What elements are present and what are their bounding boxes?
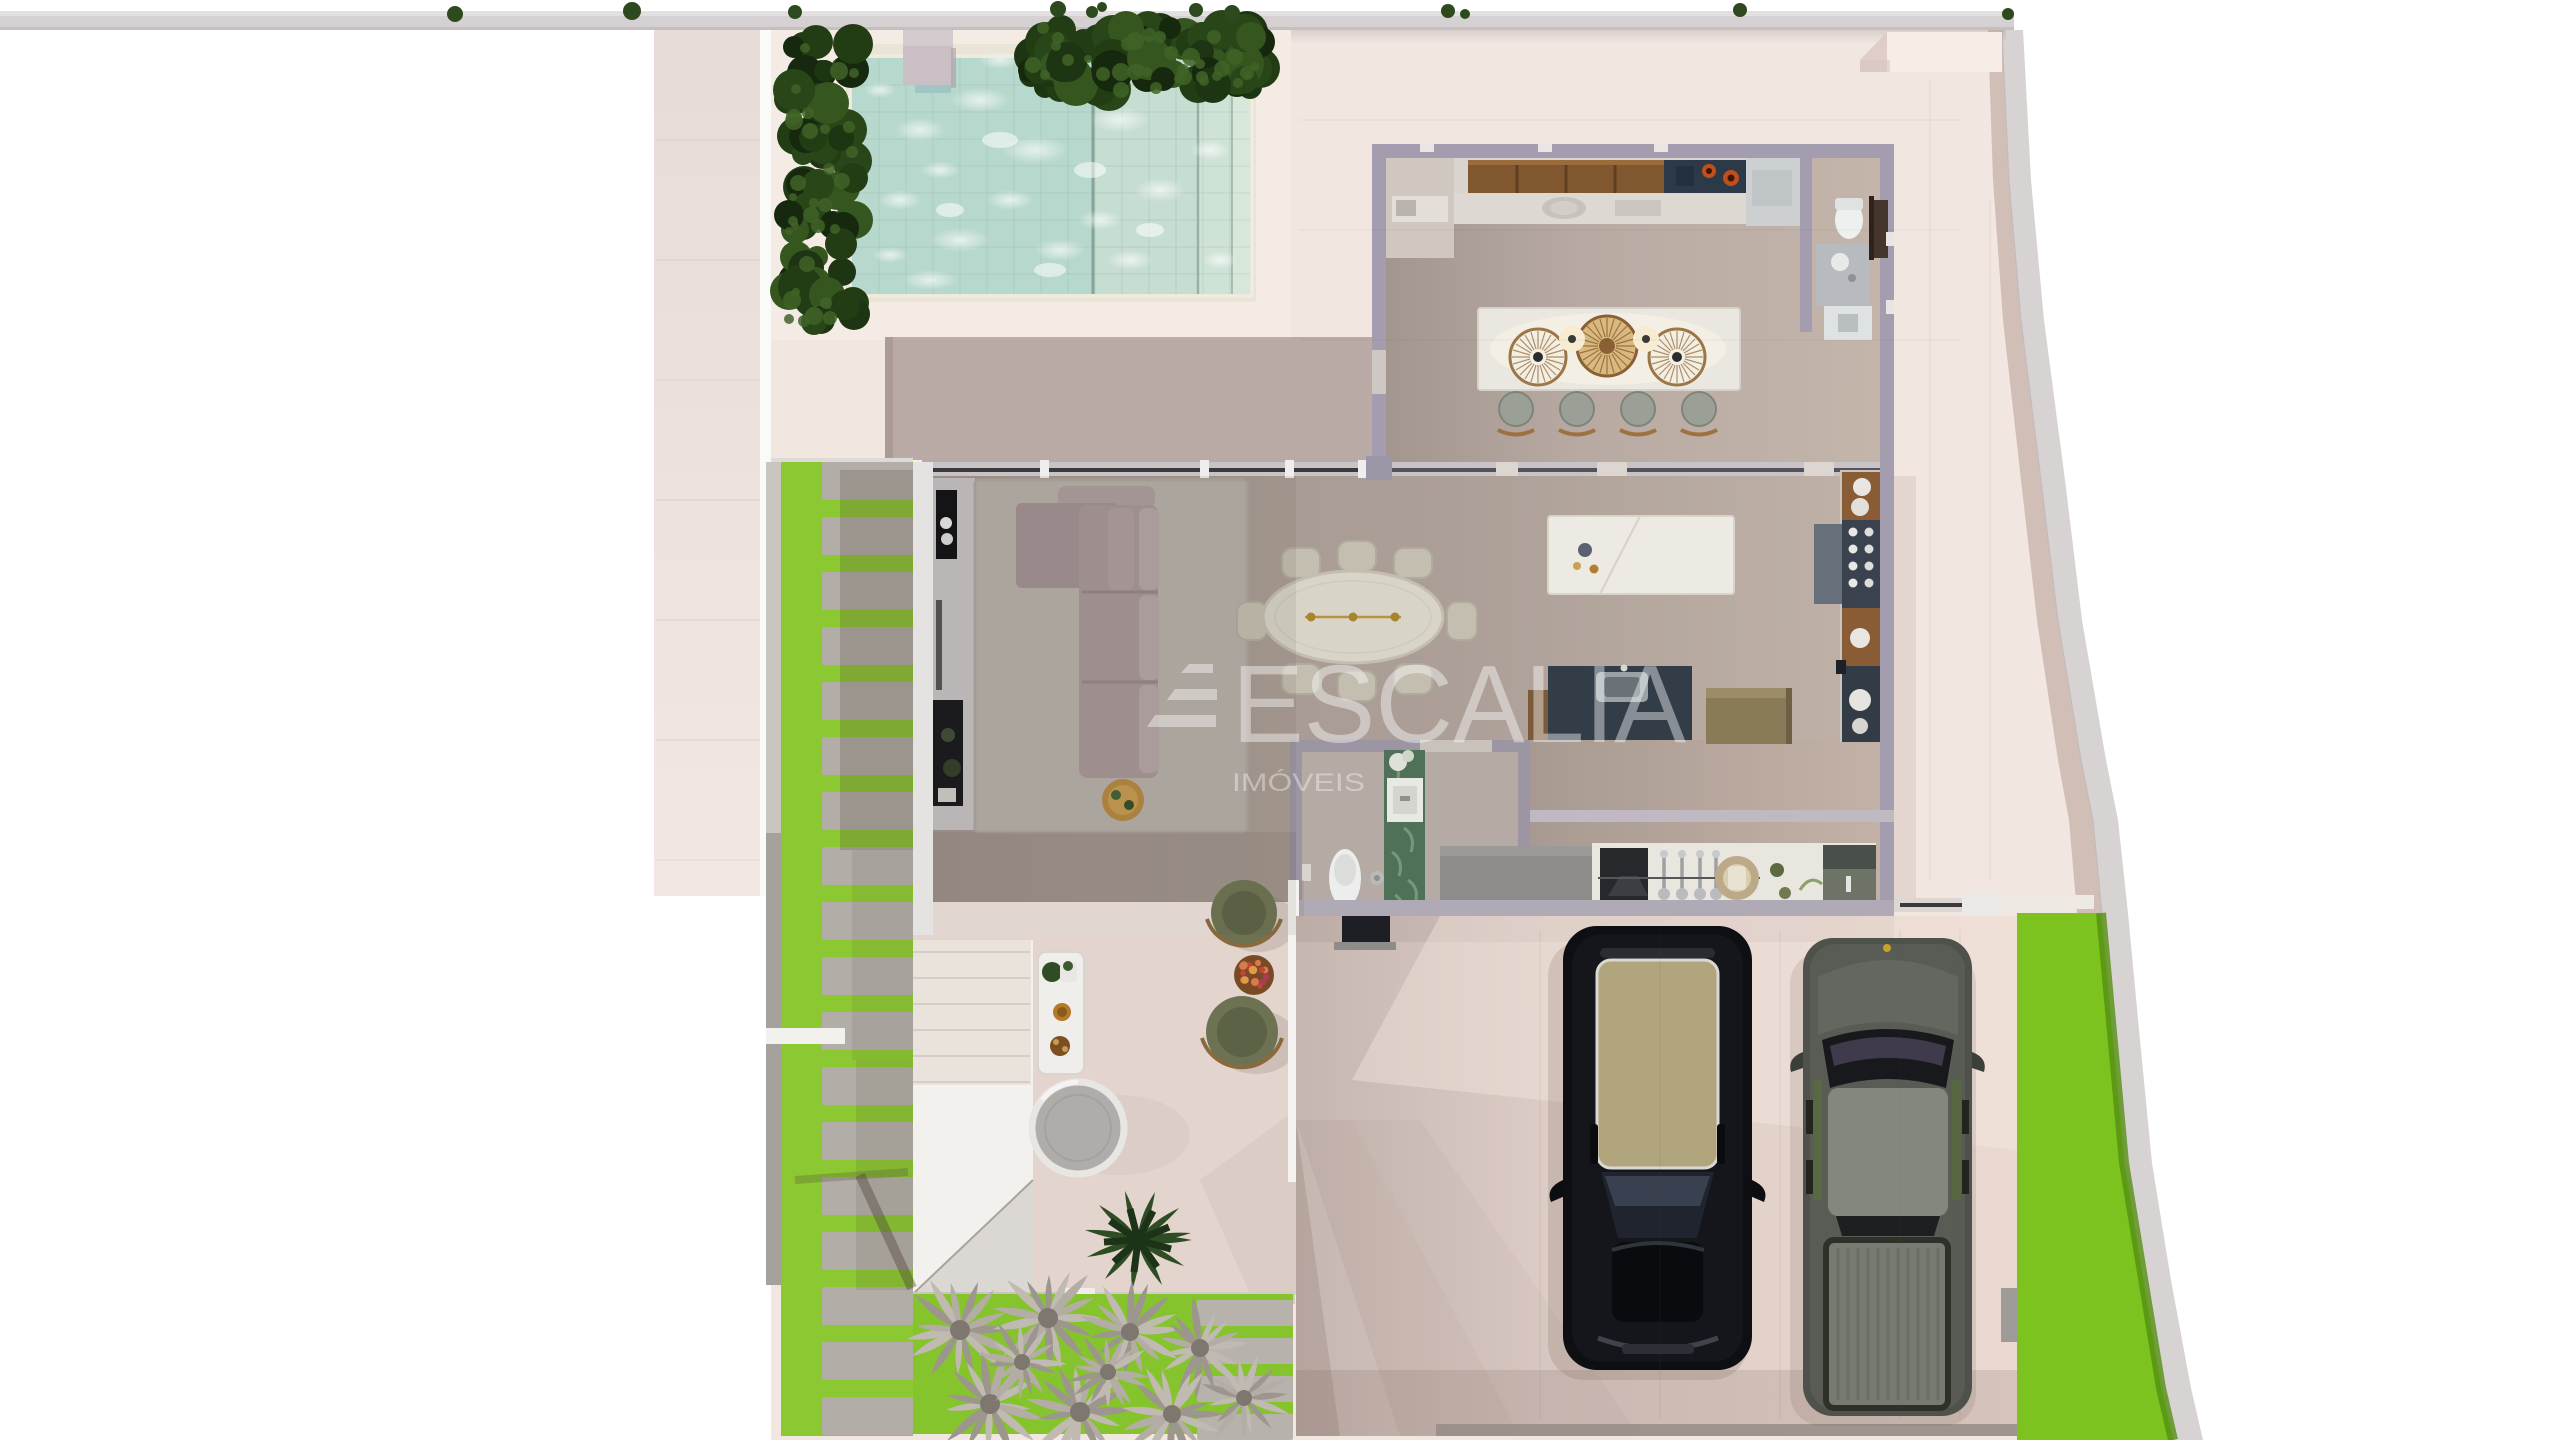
svg-text:IMÓVEIS: IMÓVEIS <box>1232 768 1365 797</box>
svg-text:ESCALIA: ESCALIA <box>1232 643 1687 766</box>
